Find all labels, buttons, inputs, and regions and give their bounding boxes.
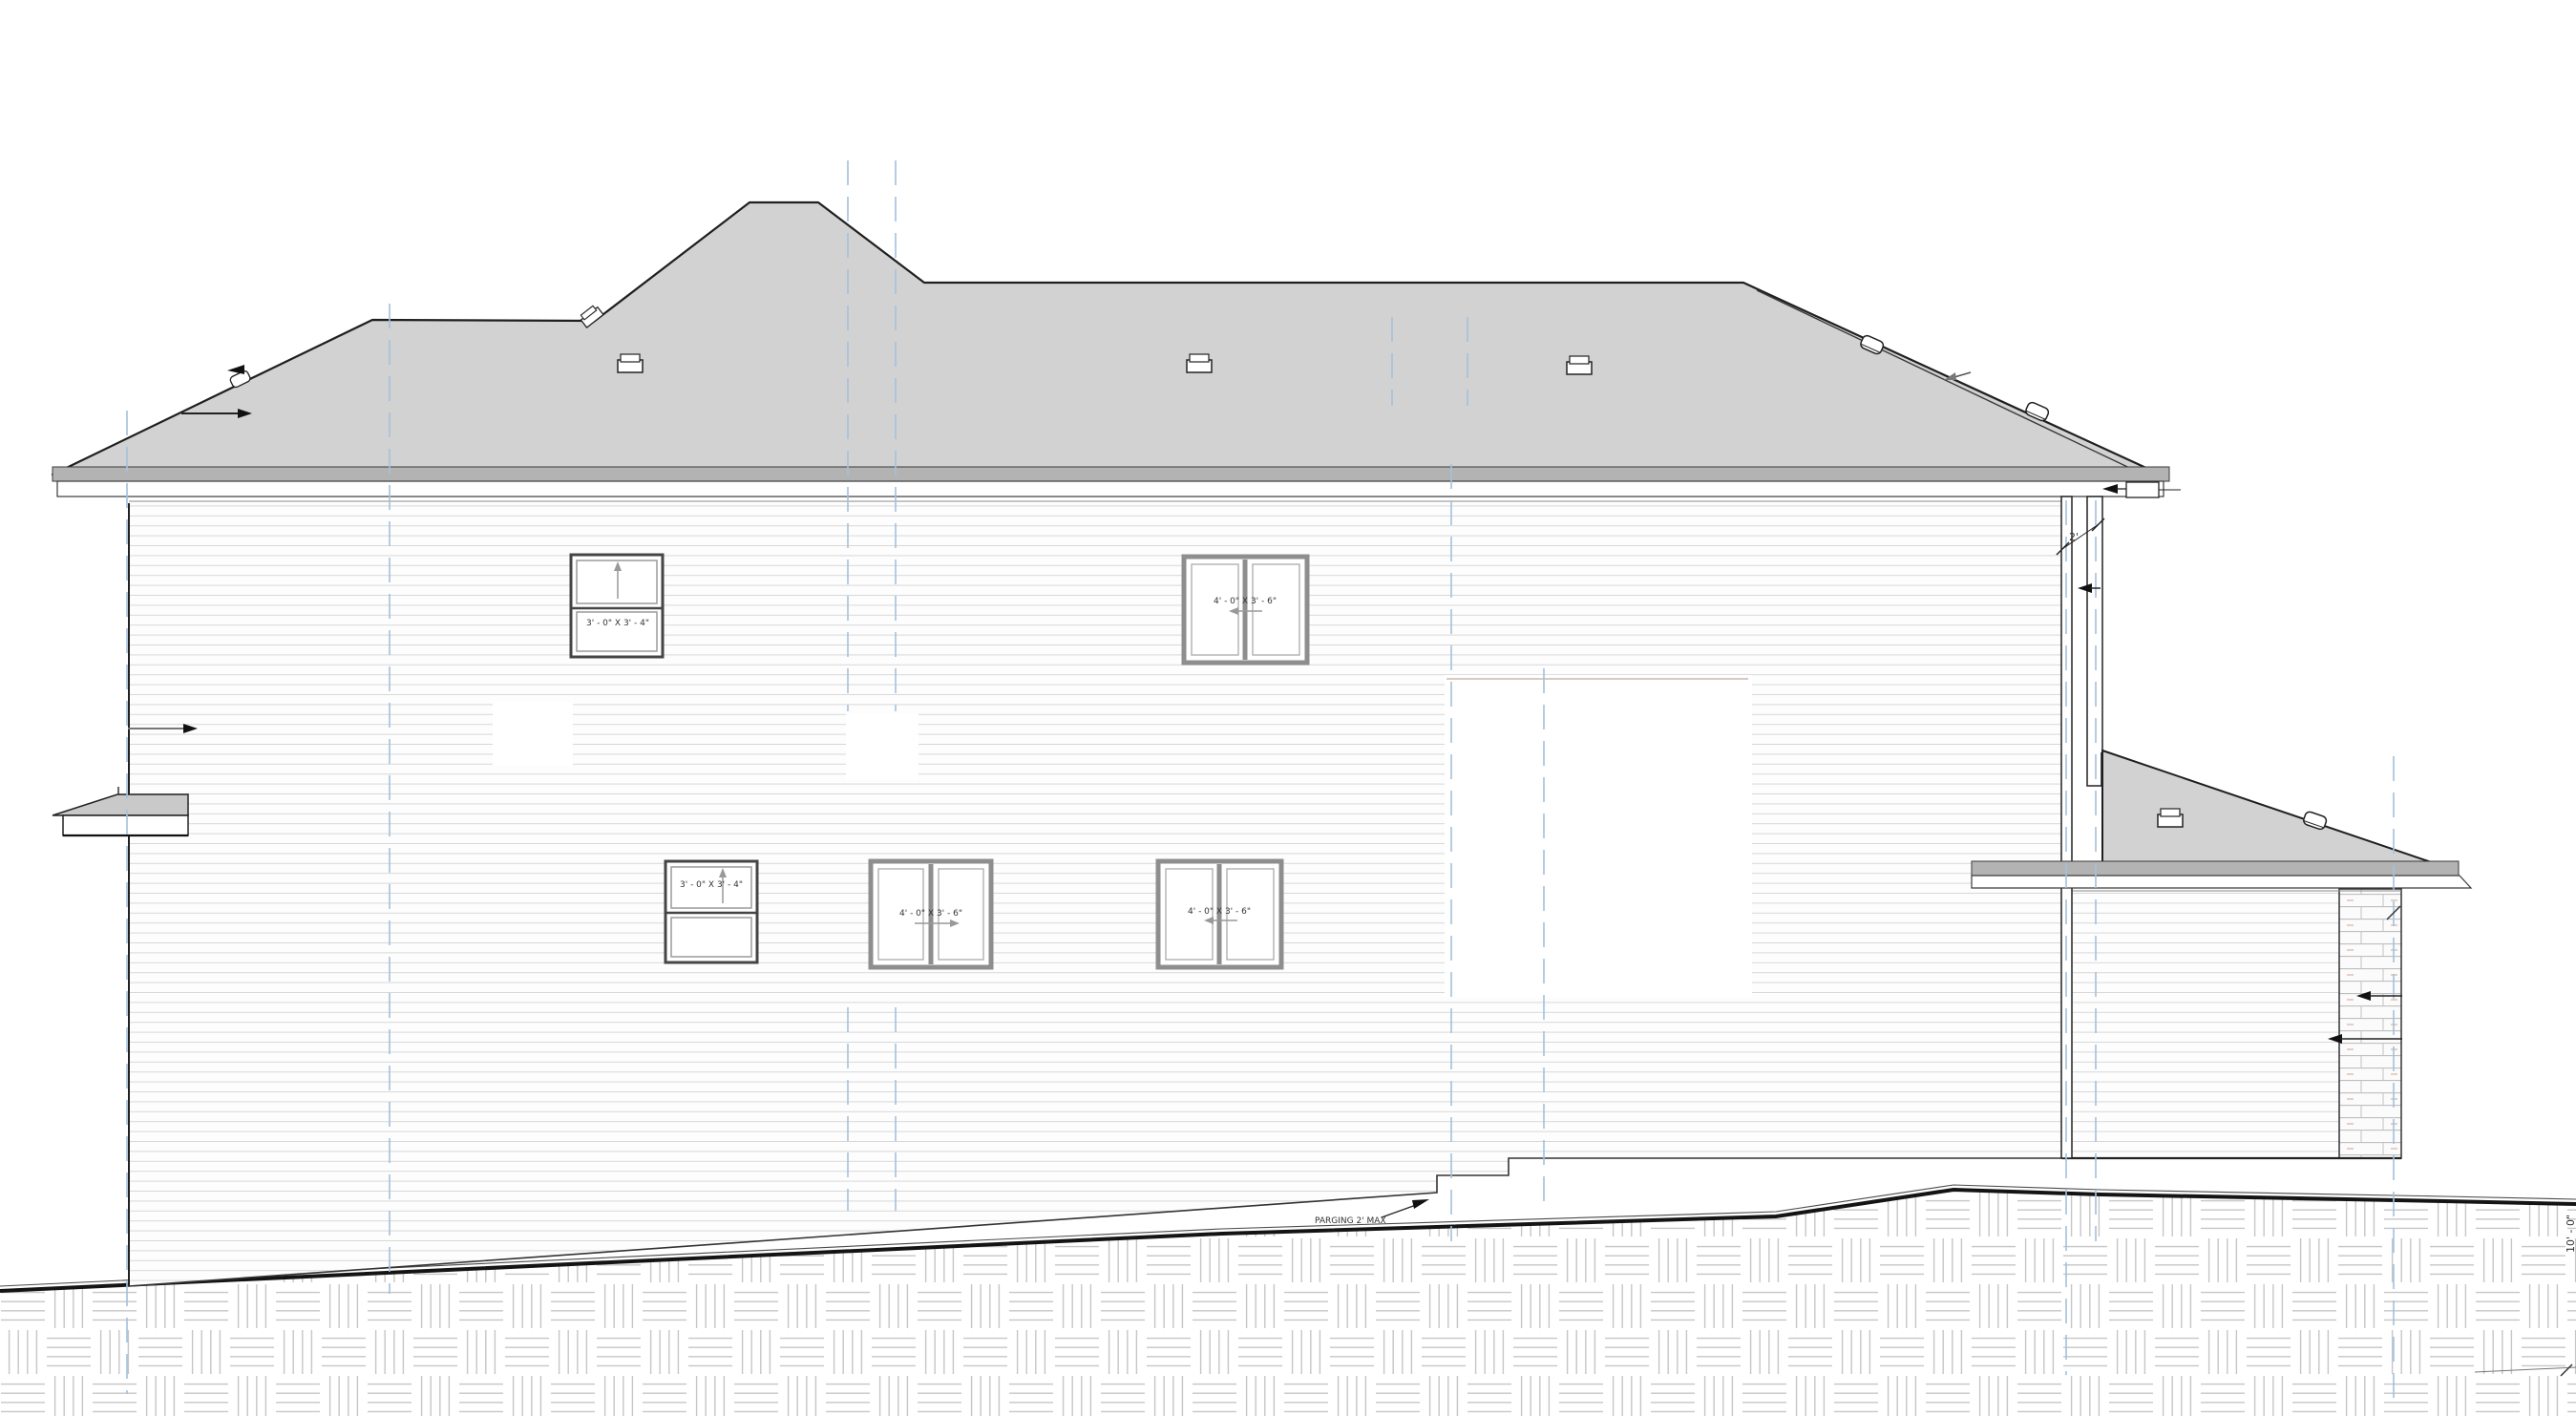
window-size-label: 4' - 0" X 3' - 6": [899, 909, 962, 919]
elevation-drawing-sheet: 3' - 0" X 3' - 4" 4' - 0" X 3' - 6" 3' -…: [0, 0, 2576, 1416]
window-lower-left: 3' - 0" X 3' - 4": [665, 861, 757, 962]
lower-roof-gutter: [1972, 861, 2459, 876]
lower-roof-fascia: [1972, 876, 2471, 888]
masked-region-large: [1445, 675, 1752, 997]
window-size-label: 3' - 0" X 3' - 4": [586, 619, 649, 628]
offset-dimension-text: 2': [2069, 531, 2079, 543]
vent-flag-arrow: [227, 365, 244, 374]
main-roof-face: [53, 202, 2161, 475]
parging-note-text: PARGING 2' MAX: [1315, 1216, 1386, 1226]
side-elevation-drawing: 3' - 0" X 3' - 4" 4' - 0" X 3' - 6" 3' -…: [0, 0, 2576, 1416]
roof-box-vent: [1187, 354, 1212, 372]
window-upper-left: 3' - 0" X 3' - 4": [571, 555, 663, 657]
window-lower-middle: 4' - 0" X 3' - 6": [871, 861, 991, 967]
leader-arrow: [1412, 1199, 1429, 1209]
right-wall-siding: [2072, 889, 2339, 1158]
window-size-label: 4' - 0" X 3' - 6": [1214, 597, 1277, 606]
main-roof: [53, 202, 2169, 501]
main-roof-fascia: [57, 481, 2164, 497]
masked-region-small-1: [493, 702, 573, 765]
roof-box-vent: [1567, 356, 1592, 374]
porch-roof-top: [53, 794, 188, 815]
parging-note: PARGING 2' MAX: [1315, 1199, 1429, 1226]
grade-elevation-text: 10' - 0": [2565, 1215, 2576, 1253]
roof-box-vent: [2158, 809, 2183, 827]
masked-region-small-2: [846, 713, 918, 780]
offset-wall-strip: [2087, 497, 2102, 786]
window-size-label: 4' - 0" X 3' - 6": [1188, 907, 1251, 917]
brick-column: [2339, 889, 2401, 1158]
lower-roof-face: [2102, 750, 2454, 870]
window-upper-middle: 4' - 0" X 3' - 6": [1184, 557, 1307, 663]
porch-roof-fascia: [63, 815, 188, 835]
right-wall-section: [2062, 889, 2401, 1158]
window-size-label: 3' - 0" X 3' - 4": [680, 880, 743, 890]
main-wall: [129, 503, 2062, 1286]
roof-box-vent: [618, 354, 643, 372]
window-lower-right: 4' - 0" X 3' - 6": [1158, 861, 1281, 967]
main-wall-siding: [129, 503, 2062, 1286]
main-roof-gutter: [53, 467, 2169, 481]
